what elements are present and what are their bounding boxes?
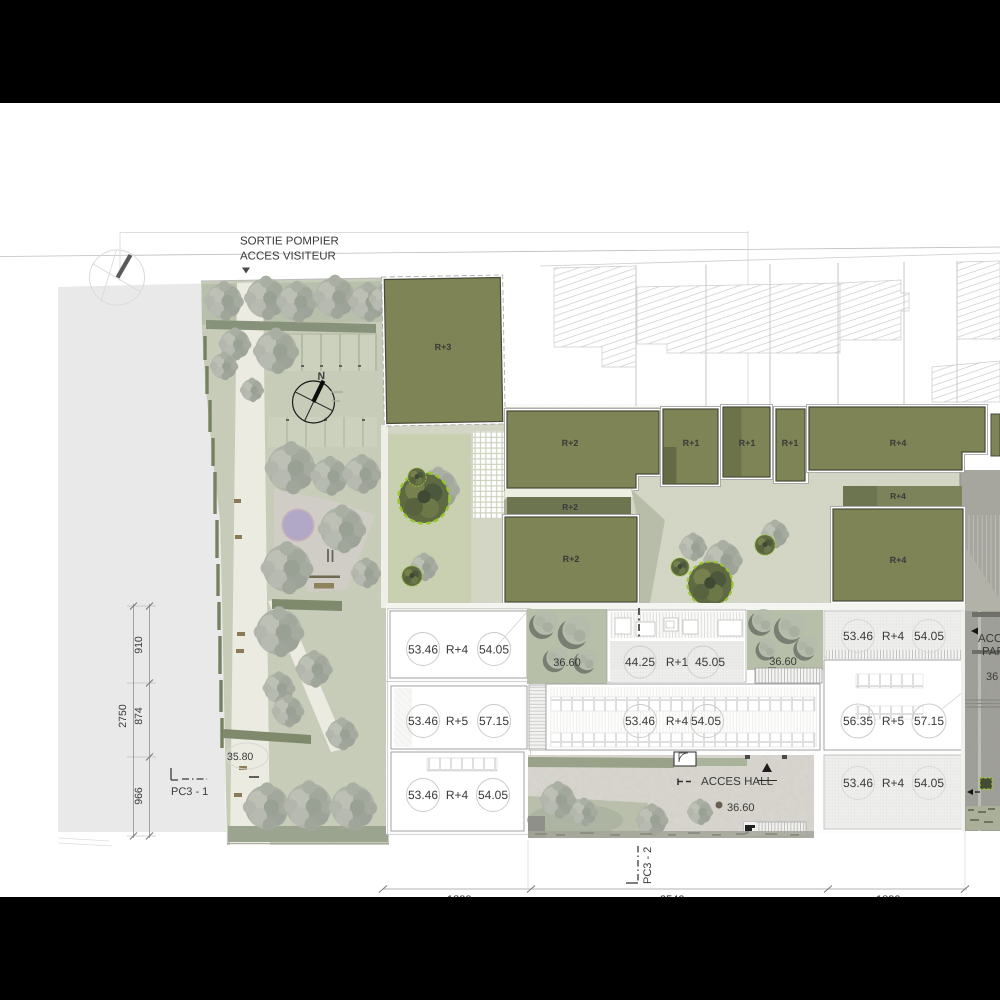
svg-text:45.05: 45.05 <box>695 655 725 669</box>
svg-text:R+4: R+4 <box>446 643 469 657</box>
svg-text:2750: 2750 <box>117 704 129 728</box>
svg-text:36.60: 36.60 <box>727 802 755 814</box>
svg-text:SORTIE POMPIER: SORTIE POMPIER <box>240 236 339 248</box>
svg-text:R+5: R+5 <box>446 714 469 728</box>
svg-text:53.46: 53.46 <box>408 643 438 657</box>
svg-text:R+1: R+1 <box>666 655 689 669</box>
svg-text:PC3 - 2: PC3 - 2 <box>642 847 654 884</box>
svg-text:53.46: 53.46 <box>625 714 655 728</box>
svg-text:54.05: 54.05 <box>691 714 721 728</box>
svg-text:44.25: 44.25 <box>625 655 655 669</box>
svg-text:R+4: R+4 <box>890 555 907 565</box>
svg-text:R+4: R+4 <box>890 438 907 448</box>
svg-text:874: 874 <box>133 707 145 725</box>
svg-text:36.60: 36.60 <box>553 657 581 669</box>
svg-text:54.05: 54.05 <box>914 629 944 643</box>
svg-text:PC3 - 1: PC3 - 1 <box>171 786 208 798</box>
svg-text:57.15: 57.15 <box>914 714 944 728</box>
svg-text:53.46: 53.46 <box>408 788 438 802</box>
svg-text:966: 966 <box>133 787 145 805</box>
svg-text:ACCES VISITEUR: ACCES VISITEUR <box>240 251 336 263</box>
svg-text:57.15: 57.15 <box>479 714 509 728</box>
svg-text:36: 36 <box>986 671 998 683</box>
svg-text:53.46: 53.46 <box>408 714 438 728</box>
svg-text:56.35: 56.35 <box>843 714 873 728</box>
svg-text:R+4: R+4 <box>882 776 905 790</box>
svg-text:R+4: R+4 <box>446 788 469 802</box>
svg-text:ACCES HALL: ACCES HALL <box>701 776 774 788</box>
svg-text:R+1: R+1 <box>739 438 756 448</box>
svg-text:54.05: 54.05 <box>479 643 509 657</box>
svg-text:R+2: R+2 <box>562 438 579 448</box>
svg-text:R+4: R+4 <box>890 491 906 501</box>
svg-text:PAR: PAR <box>982 646 1000 658</box>
svg-text:R+3: R+3 <box>434 342 451 352</box>
svg-text:54.05: 54.05 <box>914 776 944 790</box>
svg-text:910: 910 <box>133 636 145 654</box>
svg-text:36.60: 36.60 <box>769 656 797 668</box>
svg-text:R+2: R+2 <box>562 502 578 512</box>
svg-text:53.46: 53.46 <box>843 629 873 643</box>
svg-text:R+1: R+1 <box>782 438 799 448</box>
svg-text:53.46: 53.46 <box>843 776 873 790</box>
svg-text:54.05: 54.05 <box>478 788 508 802</box>
svg-text:R+5: R+5 <box>882 714 905 728</box>
svg-text:ACC: ACC <box>978 633 1000 645</box>
svg-text:R+4: R+4 <box>666 714 689 728</box>
svg-text:R+1: R+1 <box>683 438 700 448</box>
svg-text:R+2: R+2 <box>563 554 580 564</box>
svg-text:R+4: R+4 <box>882 629 905 643</box>
svg-text:35.80: 35.80 <box>227 751 253 763</box>
